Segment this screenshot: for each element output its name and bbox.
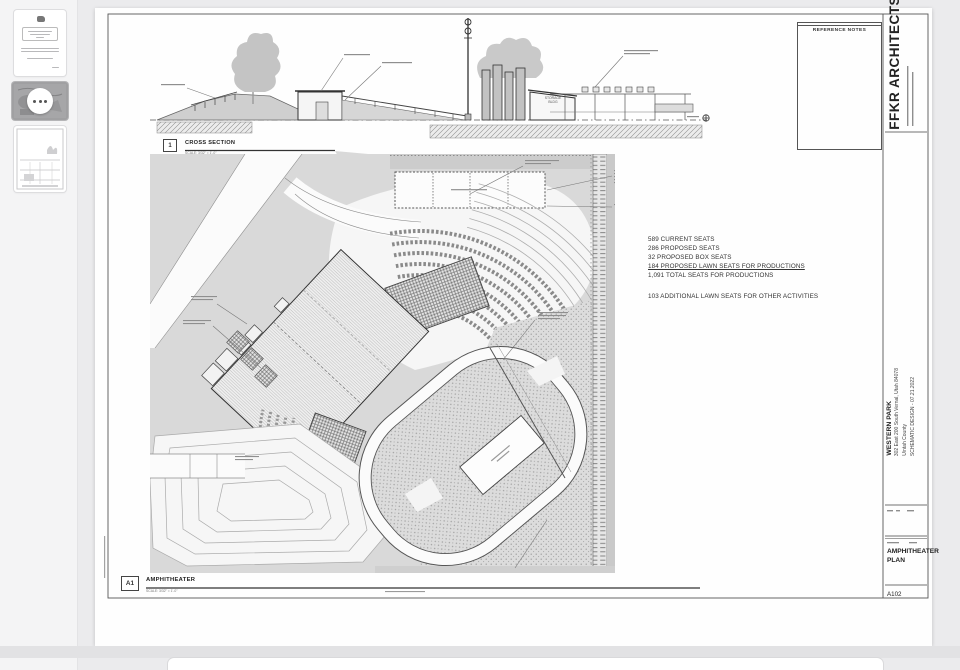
section-storage-building: [528, 90, 577, 120]
next-page-top-edge: [168, 658, 883, 670]
reference-notes-box: REFERENCE NOTES: [797, 22, 882, 150]
plan-view-scale: SCALE: 3/32" = 1'-0": [146, 590, 177, 594]
titleblock-project-address: 302 East 200 South Vernal, Utah 84078: [895, 368, 901, 456]
plan-view-title: AMPHITHEATER: [146, 577, 195, 584]
seat-summary-additional: 103 ADDITIONAL LAWN SEATS FOR OTHER ACTI…: [648, 293, 818, 302]
thumbnail-sidebar: [0, 0, 78, 670]
proposed-lawn-seats-area: [395, 172, 545, 208]
cross-walk: [150, 454, 245, 478]
plan-view-tag: A1: [121, 576, 139, 591]
amphitheater-plan-drawing: [150, 154, 648, 598]
sheet-number: A102: [887, 591, 901, 598]
titleblock-project-county: Uintah County: [903, 424, 909, 456]
thumbnail-page-1[interactable]: [14, 10, 66, 76]
sheet-title-line2: PLAN: [887, 557, 939, 566]
drawing-sheet-a102: REFERENCE NOTES FFKR ARCHITECTS WESTERN …: [95, 8, 932, 646]
sheet-title-line1: AMPHITHEATER: [887, 548, 939, 557]
seat-summary-line: 184 PROPOSED LAWN SEATS FOR PRODUCTIONS: [648, 263, 818, 272]
page-gap: [0, 646, 960, 658]
thumbnail-more-icon[interactable]: [27, 88, 53, 114]
seat-summary-line: 286 PROPOSED SEATS: [648, 245, 818, 254]
section-view-tag: 1: [163, 139, 177, 152]
seat-summary-line: 32 PROPOSED BOX SEATS: [648, 254, 818, 263]
thumbnail-page-2-selected[interactable]: [12, 82, 68, 120]
seat-summary-line: 589 CURRENT SEATS: [648, 236, 818, 245]
cross-section-drawing: [150, 18, 709, 138]
storage-label-line2: BLDG: [533, 100, 573, 104]
east-walk-strip: [591, 154, 615, 573]
section-light-pole: [464, 18, 472, 120]
section-restroom-building: [295, 91, 345, 120]
thumbnail-drawing-preview-2: [14, 126, 66, 192]
thumbnail-page-3[interactable]: [14, 126, 66, 192]
section-view-scale: SCALE: 3/32" = 1'-0": [185, 152, 216, 156]
document-logo-icon: [37, 16, 45, 22]
section-view-title: CROSS SECTION: [185, 140, 235, 146]
titleblock-project-name: WESTERN PARK: [886, 401, 894, 456]
seat-summary: 589 CURRENT SEATS 286 PROPOSED SEATS 32 …: [648, 236, 818, 302]
seat-summary-line: 1,091 TOTAL SEATS FOR PRODUCTIONS: [648, 272, 818, 281]
reference-notes-title: REFERENCE NOTES: [798, 28, 881, 33]
titleblock-phase: SCHEMATIC DESIGN - 07.21.2022: [911, 377, 917, 456]
firm-name: FFKR ARCHITECTS: [887, 0, 903, 130]
